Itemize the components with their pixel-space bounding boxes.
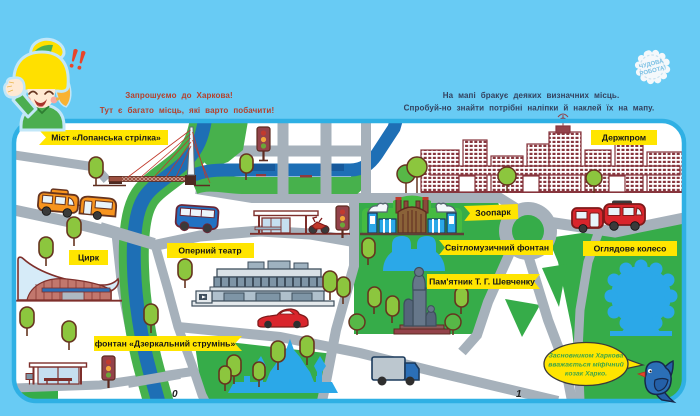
svg-text:Спробуй-но знайти потрібні нал: Спробуй-но знайти потрібні наліпки й нак… xyxy=(404,104,655,113)
svg-text:Оглядове колесо: Оглядове колесо xyxy=(594,244,667,254)
svg-text:Запрошуємо до Харкова!: Запрошуємо до Харкова! xyxy=(125,91,233,100)
svg-text:1: 1 xyxy=(516,389,522,400)
svg-text:вважається міфічний: вважається міфічний xyxy=(548,361,624,369)
svg-text:На мапі бракує деяких визначни: На мапі бракує деяких визначних місць. xyxy=(443,91,620,100)
svg-text:Засновником Харкова: Засновником Харкова xyxy=(549,353,624,360)
svg-text:козак Харко.: козак Харко. xyxy=(565,371,607,378)
svg-text:Тут є багато місць, які варто: Тут є багато місць, які варто побачити! xyxy=(100,106,274,115)
svg-text:Оперний театр: Оперний театр xyxy=(178,246,241,256)
svg-text:Світломузичний фонтан: Світломузичний фонтан xyxy=(445,243,549,253)
svg-text:Держпром: Держпром xyxy=(602,133,646,143)
svg-text:0: 0 xyxy=(172,389,178,400)
svg-text:Зоопарк: Зоопарк xyxy=(475,207,511,218)
svg-text:Пам'ятник Т. Г. Шевченку: Пам'ятник Т. Г. Шевченку xyxy=(429,277,535,287)
svg-text:Цирк: Цирк xyxy=(78,253,100,263)
svg-text:Міст «Лопанська стрілка»: Міст «Лопанська стрілка» xyxy=(51,133,161,143)
svg-text:фонтан «Дзеркальний струмінь»: фонтан «Дзеркальний струмінь» xyxy=(95,339,236,349)
